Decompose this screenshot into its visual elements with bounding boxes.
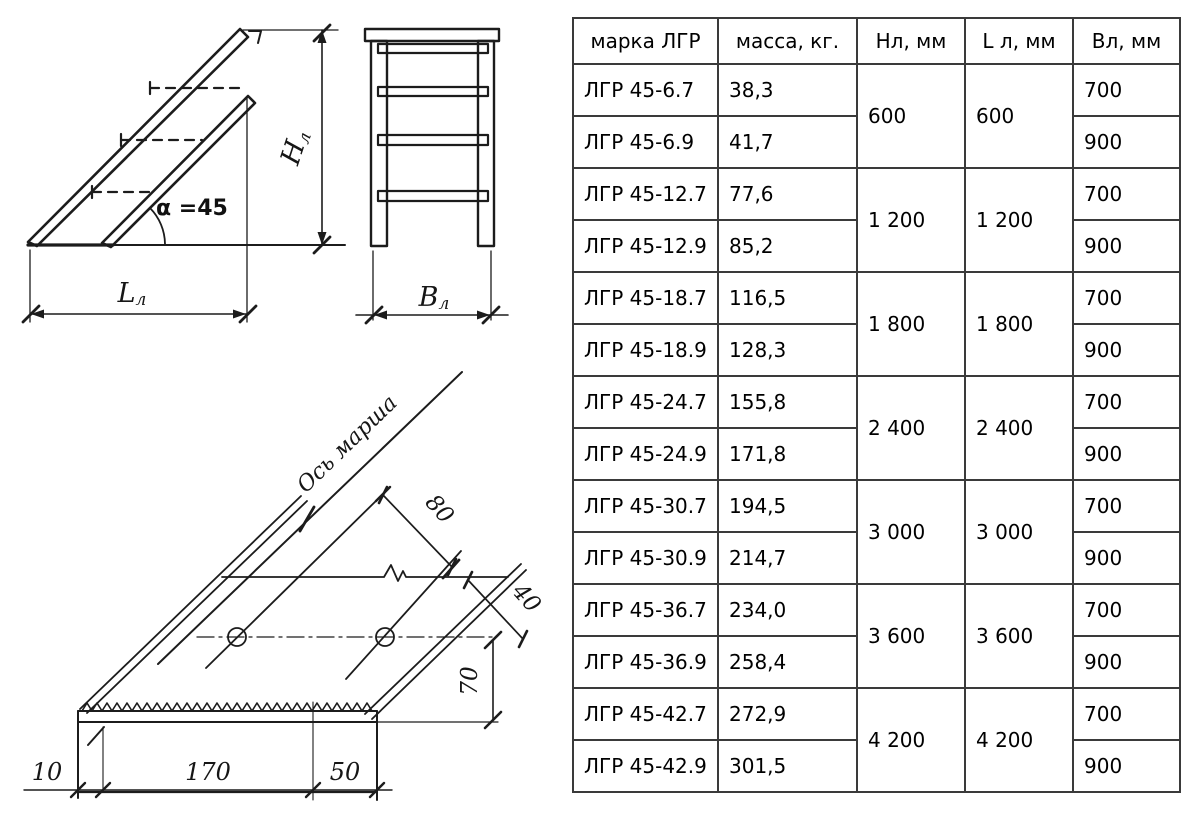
plate-right-edge <box>365 564 521 714</box>
technical-drawing: α =45 Нл Lл <box>0 0 565 822</box>
mass-cell: 272,9 <box>718 688 857 740</box>
width-mm-cell: 900 <box>1073 636 1180 688</box>
spec-table-container: марка ЛГРмасса, кг.Нл, ммL л, ммВл, мм Л… <box>572 17 1181 793</box>
front-view-drawing: Вл <box>356 29 508 323</box>
mark-cell: ЛГР 45-12.7 <box>573 168 718 220</box>
height-mm-cell: 1 200 <box>857 168 965 272</box>
length-mm-cell: 600 <box>965 64 1073 168</box>
mark-cell: ЛГР 45-6.7 <box>573 64 718 116</box>
front-view-top-cap <box>365 29 499 41</box>
width-mm-cell: 900 <box>1073 324 1180 376</box>
header-row: марка ЛГРмасса, кг.Нл, ммL л, ммВл, мм <box>573 18 1180 64</box>
width-mm-cell: 900 <box>1073 116 1180 168</box>
width-mm-cell: 700 <box>1073 168 1180 220</box>
height-mm-cell: 3 600 <box>857 584 965 688</box>
side-view-apex-hook <box>249 31 261 43</box>
height-mm-cell: 3 000 <box>857 480 965 584</box>
flight-axis-line <box>158 372 462 664</box>
height-mm-cell: 1 800 <box>857 272 965 376</box>
tread-detail-drawing: Ось марша 80 40 <box>24 372 546 800</box>
front-view-rungs <box>378 44 488 201</box>
mass-cell: 194,5 <box>718 480 857 532</box>
dim-10-label: 10 <box>32 758 63 786</box>
width-mm-cell: 900 <box>1073 220 1180 272</box>
dim-40: 40 <box>464 572 546 647</box>
mark-cell: ЛГР 45-30.7 <box>573 480 718 532</box>
mass-cell: 234,0 <box>718 584 857 636</box>
mark-cell: ЛГР 45-18.7 <box>573 272 718 324</box>
dim-80: 80 <box>379 487 459 575</box>
width-mm-cell: 700 <box>1073 64 1180 116</box>
plate-left-edge <box>80 496 301 709</box>
width-mm-cell: 900 <box>1073 428 1180 480</box>
front-view-right-rail <box>478 41 494 246</box>
mass-cell: 214,7 <box>718 532 857 584</box>
length-mm-cell: 2 400 <box>965 376 1073 480</box>
table-row: ЛГР 45-30.7194,53 0003 000700 <box>573 480 1180 532</box>
mass-cell: 38,3 <box>718 64 857 116</box>
table-row: ЛГР 45-42.7272,94 2004 200700 <box>573 688 1180 740</box>
table-row: ЛГР 45-6.738,3600600700 <box>573 64 1180 116</box>
length-mm-cell: 1 200 <box>965 168 1073 272</box>
mark-cell: ЛГР 45-24.7 <box>573 376 718 428</box>
height-mm-cell: 600 <box>857 64 965 168</box>
width-mm-cell: 900 <box>1073 532 1180 584</box>
mass-cell: 77,6 <box>718 168 857 220</box>
mark-cell: ЛГР 45-6.9 <box>573 116 718 168</box>
dim-50-label: 50 <box>330 758 361 786</box>
mass-cell: 85,2 <box>718 220 857 272</box>
left-hole-diagonal <box>206 494 383 668</box>
length-mm-cell: 4 200 <box>965 688 1073 792</box>
height-dimension-label: Нл <box>275 126 316 170</box>
column-header-0: марка ЛГР <box>573 18 718 64</box>
spec-table-head: марка ЛГРмасса, кг.Нл, ммL л, ммВл, мм <box>573 18 1180 64</box>
dim-70: 70 <box>457 632 501 728</box>
column-header-1: масса, кг. <box>718 18 857 64</box>
height-mm-cell: 4 200 <box>857 688 965 792</box>
plate-back-edge <box>222 565 508 581</box>
mark-cell: ЛГР 45-24.9 <box>573 428 718 480</box>
length-mm-cell: 3 600 <box>965 584 1073 688</box>
length-mm-cell: 3 000 <box>965 480 1073 584</box>
mark-cell: ЛГР 45-30.9 <box>573 532 718 584</box>
width-mm-cell: 700 <box>1073 272 1180 324</box>
mark-cell: ЛГР 45-12.9 <box>573 220 718 272</box>
mark-cell: ЛГР 45-36.7 <box>573 584 718 636</box>
spec-table: марка ЛГРмасса, кг.Нл, ммL л, ммВл, мм Л… <box>572 17 1181 793</box>
mass-cell: 171,8 <box>718 428 857 480</box>
height-mm-cell: 2 400 <box>857 376 965 480</box>
table-row: ЛГР 45-18.7116,51 8001 800700 <box>573 272 1180 324</box>
spec-table-body: ЛГР 45-6.738,3600600700ЛГР 45-6.941,7900… <box>573 64 1180 792</box>
length-dimension-label: Lл <box>117 278 147 310</box>
mark-cell: ЛГР 45-18.9 <box>573 324 718 376</box>
length-dimension: Lл <box>23 250 256 322</box>
serrated-edge <box>82 703 372 711</box>
right-hole-diagonal <box>346 551 461 679</box>
width-mm-cell: 700 <box>1073 376 1180 428</box>
mass-cell: 116,5 <box>718 272 857 324</box>
mass-cell: 41,7 <box>718 116 857 168</box>
flight-axis-tick <box>300 507 314 531</box>
length-mm-cell: 1 800 <box>965 272 1073 376</box>
width-mm-cell: 700 <box>1073 584 1180 636</box>
mass-cell: 128,3 <box>718 324 857 376</box>
mass-cell: 258,4 <box>718 636 857 688</box>
table-row: ЛГР 45-36.7234,03 6003 600700 <box>573 584 1180 636</box>
mark-cell: ЛГР 45-36.9 <box>573 636 718 688</box>
dim-80-label: 80 <box>420 490 459 529</box>
column-header-3: L л, мм <box>965 18 1073 64</box>
width-mm-cell: 700 <box>1073 480 1180 532</box>
width-mm-cell: 900 <box>1073 740 1180 792</box>
mass-cell: 155,8 <box>718 376 857 428</box>
column-header-4: Вл, мм <box>1073 18 1180 64</box>
side-view-drawing: α =45 Нл Lл <box>23 25 345 322</box>
width-mm-cell: 700 <box>1073 688 1180 740</box>
mark-cell: ЛГР 45-42.9 <box>573 740 718 792</box>
height-dimension: Нл <box>243 25 338 322</box>
table-row: ЛГР 45-12.777,61 2001 200700 <box>573 168 1180 220</box>
tread-front-face <box>78 702 498 800</box>
column-header-2: Нл, мм <box>857 18 965 64</box>
width-dimension-label: Вл <box>418 282 450 314</box>
side-view-right-stringer <box>102 96 255 247</box>
dim-170-label: 170 <box>185 758 231 786</box>
dim-70-label: 70 <box>457 666 483 695</box>
mass-cell: 301,5 <box>718 740 857 792</box>
angle-label: α =45 <box>156 196 228 221</box>
mark-cell: ЛГР 45-42.7 <box>573 688 718 740</box>
width-dimension: Вл <box>356 251 508 323</box>
table-row: ЛГР 45-24.7155,82 4002 400700 <box>573 376 1180 428</box>
